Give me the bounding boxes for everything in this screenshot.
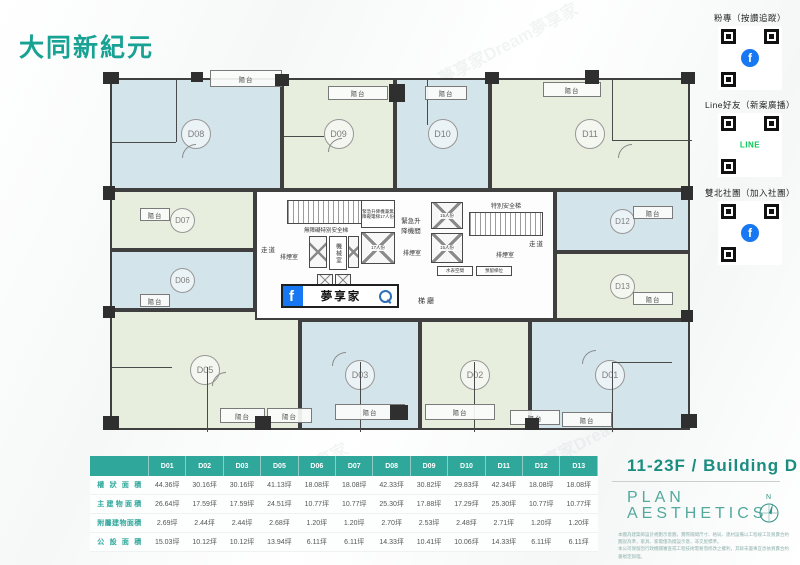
balcony: 陽台 [267, 408, 312, 423]
table-row: 附屬建物面積2.69坪2.44坪2.44坪2.68坪1.20坪1.20坪2.70… [90, 514, 598, 533]
column-block [681, 414, 697, 428]
column-header-d06: D06 [298, 456, 335, 476]
qr-finder-icon [721, 116, 736, 131]
balcony: 陽台 [210, 70, 282, 87]
search-icon [379, 290, 392, 303]
interior-wall [612, 362, 613, 432]
area-value-cell: 14.33坪 [485, 533, 522, 552]
elevator-15-label: 15人份 [439, 213, 455, 219]
facebook-group-qr-code: f [721, 204, 779, 262]
unit-label: D06 [170, 268, 195, 293]
area-value-cell: 14.33坪 [373, 533, 410, 552]
qr-finder-icon [721, 159, 736, 174]
area-value-cell: 18.08坪 [560, 476, 598, 495]
unit-label: D13 [610, 274, 635, 299]
smoke-room-right-label: 排煙室 [481, 248, 529, 260]
column-header-d07: D07 [336, 456, 373, 476]
interior-wall [360, 362, 361, 432]
area-value-cell: 18.08坪 [523, 476, 560, 495]
area-value-cell: 2.48坪 [448, 514, 485, 533]
column-header-d03: D03 [223, 456, 260, 476]
column-block [103, 186, 115, 200]
column-block [103, 306, 115, 318]
qr-finder-icon [721, 29, 736, 44]
qr-section-line: Line好友（新案廣播） LINE [703, 99, 797, 174]
unit-d12: D12 [555, 190, 690, 252]
column-block [681, 186, 693, 200]
interior-wall [612, 140, 692, 141]
area-value-cell: 30.16坪 [186, 476, 223, 495]
column-block [585, 70, 599, 84]
qr-finder-icon [721, 247, 736, 262]
area-value-cell: 15.03坪 [149, 533, 186, 552]
area-value-cell: 17.88坪 [410, 495, 447, 514]
elevator-15-label: 15人份 [439, 245, 455, 251]
facebook-search-banner: f 夢享家 [281, 284, 399, 308]
facebook-search-text: 夢享家 [303, 288, 379, 304]
area-value-cell: 6.11坪 [298, 533, 335, 552]
balcony: 陽台 [633, 292, 673, 305]
column-header-d05: D05 [261, 456, 298, 476]
area-value-cell: 26.64坪 [149, 495, 186, 514]
facebook-icon: f [739, 47, 761, 69]
column-block [191, 72, 203, 82]
shaft-box [348, 236, 359, 268]
area-table: D01D02D03D05D06D07D08D09D10D11D12D13 權狀面… [90, 456, 598, 552]
unit-d07: D07 [110, 190, 255, 250]
area-value-cell: 6.11坪 [336, 533, 373, 552]
area-value-cell: 25.30坪 [485, 495, 522, 514]
area-value-cell: 2.53坪 [410, 514, 447, 533]
poster-page: 夢享家Dream夢享家 夢享家Dream夢享家 夢享家Dream夢享家 夢享家D… [0, 0, 800, 565]
area-value-cell: 6.11坪 [523, 533, 560, 552]
unit-label: D08 [181, 119, 211, 149]
column-header-d09: D09 [410, 456, 447, 476]
column-block [390, 405, 408, 420]
row-label: 公設面積 [90, 533, 149, 552]
column-header-d10: D10 [448, 456, 485, 476]
table-row: 主建物面積26.64坪17.59坪17.59坪24.51坪10.77坪10.77… [90, 495, 598, 514]
area-value-cell: 1.20坪 [298, 514, 335, 533]
barrier-free-stair [287, 200, 365, 224]
area-value-cell: 10.77坪 [336, 495, 373, 514]
column-header-d02: D02 [186, 456, 223, 476]
row-label: 附屬建物面積 [90, 514, 149, 533]
area-value-cell: 41.13坪 [261, 476, 298, 495]
area-value-cell: 24.51坪 [261, 495, 298, 514]
unit-d13: D13 [555, 252, 690, 320]
balcony: 陽台 [140, 208, 170, 221]
area-value-cell: 2.69坪 [149, 514, 186, 533]
column-block [275, 74, 289, 86]
area-table-body: 權狀面積44.36坪30.16坪30.16坪41.13坪18.08坪18.08坪… [90, 476, 598, 552]
column-block [525, 418, 539, 430]
qr-finder-icon [764, 204, 779, 219]
table-row: 公設面積15.03坪10.12坪10.12坪13.94坪6.11坪6.11坪14… [90, 533, 598, 552]
qr-section-fanpage: 粉專（按讚追蹤） f [703, 12, 797, 87]
line-icon: LINE [737, 139, 763, 152]
qr-finder-icon [764, 29, 779, 44]
facebook-qr-code: f [721, 29, 779, 87]
area-value-cell: 10.77坪 [523, 495, 560, 514]
aesthetics-word: AESTHETICS [627, 505, 767, 523]
row-label: 主建物面積 [90, 495, 149, 514]
column-header-d08: D08 [373, 456, 410, 476]
emergency-elevator-hall-label: 緊急升降機間 [399, 208, 423, 242]
shaft-box [309, 236, 327, 268]
floor-plan: D08 D09 D10 D11 D07 D06 D05 [95, 58, 695, 448]
area-table-header-row: D01D02D03D05D06D07D08D09D10D11D12D13 [90, 456, 598, 476]
area-value-cell: 18.08坪 [336, 476, 373, 495]
area-value-cell: 2.44坪 [223, 514, 260, 533]
area-value-cell: 13.94坪 [261, 533, 298, 552]
area-value-cell: 30.16坪 [223, 476, 260, 495]
elevator-17-label: 17人份 [370, 245, 386, 251]
area-value-cell: 17.59坪 [223, 495, 260, 514]
special-stair-label: 特別安全梯 [469, 200, 543, 210]
area-value-cell: 10.77坪 [560, 495, 598, 514]
qr-finder-icon [721, 72, 736, 87]
column-block [485, 72, 499, 84]
unit-d08: D08 [110, 78, 282, 190]
compass-north-label: N [766, 494, 771, 501]
unit-label: D10 [428, 119, 458, 149]
unit-label: D11 [575, 119, 605, 149]
interior-wall [207, 367, 208, 432]
area-value-cell: 17.29坪 [448, 495, 485, 514]
area-value-cell: 1.20坪 [336, 514, 373, 533]
balcony: 陽台 [543, 82, 601, 97]
area-value-cell: 10.41坪 [410, 533, 447, 552]
row-label: 權狀面積 [90, 476, 149, 495]
column-block [103, 72, 119, 84]
area-value-cell: 30.82坪 [410, 476, 447, 495]
qr-finder-icon [764, 116, 779, 131]
column-block [681, 310, 693, 322]
unit-label: D12 [610, 209, 635, 234]
column-block [255, 416, 271, 430]
line-qr-code: LINE [721, 116, 779, 174]
elevator-15: 15人份 [431, 202, 463, 229]
door-arc [582, 350, 596, 364]
column-block [103, 416, 119, 430]
column-header-d12: D12 [523, 456, 560, 476]
elevator-15: 15人份 [431, 233, 463, 263]
disclaimer-line: 本圖為建築師設計規劃示意圖，實際隔間尺寸、格局、建材設備以工程竣工及買賣合約圖說… [618, 531, 790, 545]
floor-building-title: 11-23F / Building D [627, 456, 798, 476]
unit-label: D02 [460, 360, 490, 390]
special-stair [469, 212, 543, 236]
area-value-cell: 6.11坪 [560, 533, 598, 552]
area-value-cell: 29.83坪 [448, 476, 485, 495]
reserved-shaft-space: 預留梯位 [476, 266, 512, 276]
column-block [389, 84, 405, 102]
area-value-cell: 42.34坪 [485, 476, 522, 495]
area-value-cell: 2.70坪 [373, 514, 410, 533]
facebook-icon: f [739, 222, 761, 244]
interior-wall [176, 80, 177, 142]
balcony: 陽台 [633, 206, 673, 219]
balcony: 陽台 [425, 404, 495, 420]
area-value-cell: 2.44坪 [186, 514, 223, 533]
qr-label-line: Line好友（新案廣播） [703, 99, 797, 111]
emergency-elevator-note: 緊急升降機兼無障礙電梯17人份 [361, 200, 395, 228]
elevator-lobby-label: 梯廳 [407, 294, 447, 308]
interior-wall [612, 80, 613, 140]
compass-icon: N [756, 496, 782, 526]
service-core: 走道 走道 無障礙特別安全梯 排煙室 機械室 緊急升降機兼無障礙電梯17人份 1… [255, 190, 555, 320]
balcony: 陽台 [140, 294, 170, 307]
door-arc [182, 144, 196, 158]
barrier-free-stair-label: 無障礙特別安全梯 [281, 225, 371, 235]
qr-finder-icon [721, 204, 736, 219]
interior-wall [284, 136, 324, 137]
door-arc [332, 352, 346, 366]
table-row: 權狀面積44.36坪30.16坪30.16坪41.13坪18.08坪18.08坪… [90, 476, 598, 495]
area-value-cell: 1.20坪 [523, 514, 560, 533]
interior-wall [474, 362, 475, 432]
balcony: 陽台 [328, 86, 388, 100]
corridor-label-right: 走道 [529, 238, 544, 248]
disclaimer-text: 本圖為建築師設計規劃示意圖，實際隔間尺寸、格局、建材設備以工程竣工及買賣合約圖說… [618, 531, 790, 560]
water-meter-space: 水表空間 [437, 266, 473, 276]
qr-label-group: 雙北社團（加入社團） [703, 187, 797, 199]
unit-d06: D06 [110, 250, 255, 310]
area-value-cell: 2.71坪 [485, 514, 522, 533]
smoke-room-left-label: 排煙室 [271, 250, 307, 262]
area-value-cell: 18.08坪 [298, 476, 335, 495]
area-value-cell: 10.77坪 [298, 495, 335, 514]
interior-wall [612, 362, 672, 363]
column-header-d11: D11 [485, 456, 522, 476]
qr-label-fanpage: 粉專（按讚追蹤） [703, 12, 797, 24]
machine-room: 機械室 [329, 236, 347, 270]
area-value-cell: 17.59坪 [186, 495, 223, 514]
unit-label: D01 [595, 360, 625, 390]
area-value-cell: 25.30坪 [373, 495, 410, 514]
area-value-cell: 2.68坪 [261, 514, 298, 533]
facebook-icon: f [283, 286, 303, 306]
qr-section-group: 雙北社團（加入社團） f [703, 187, 797, 262]
interior-wall [112, 142, 176, 143]
divider-line [612, 481, 780, 482]
area-value-cell: 1.20坪 [560, 514, 598, 533]
column-header-d01: D01 [149, 456, 186, 476]
area-value-cell: 44.36坪 [149, 476, 186, 495]
area-value-cell: 10.06坪 [448, 533, 485, 552]
corner-cell [90, 456, 149, 476]
disclaimer-line: 本公司保留因行政機關審查或工程技術需要而修改之權利，其餘未盡事宜悉依買賣合約書規… [618, 545, 790, 559]
door-arc [618, 144, 632, 158]
unit-label: D07 [170, 208, 195, 233]
smoke-room-center-label: 排煙室 [396, 246, 428, 258]
interior-wall [112, 367, 172, 368]
elevator-17: 17人份 [361, 232, 395, 264]
area-value-cell: 10.12坪 [223, 533, 260, 552]
column-block [681, 72, 695, 84]
balcony: 陽台 [425, 86, 467, 100]
area-value-cell: 42.33坪 [373, 476, 410, 495]
column-header-d13: D13 [560, 456, 598, 476]
balcony: 陽台 [562, 412, 612, 427]
area-value-cell: 10.12坪 [186, 533, 223, 552]
